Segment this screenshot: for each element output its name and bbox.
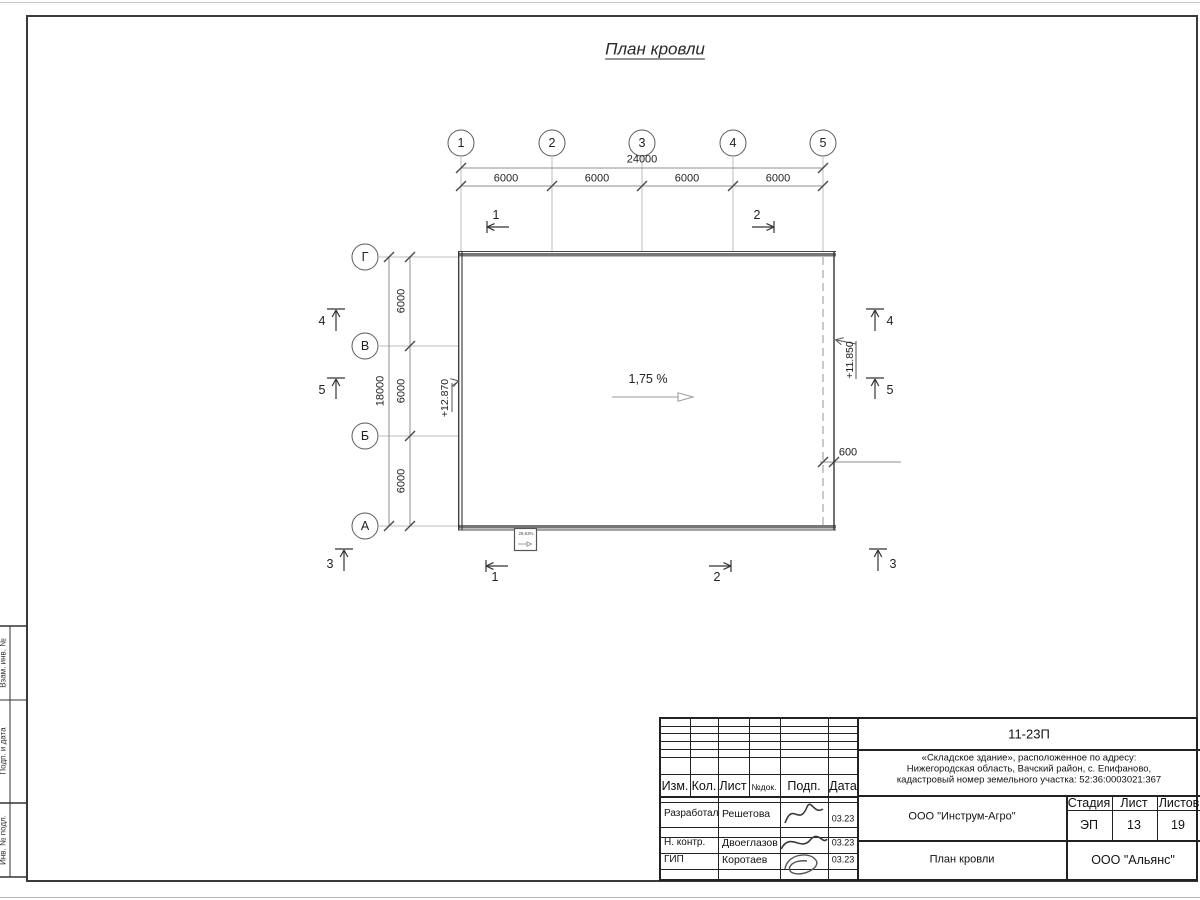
tb-sheet-value: 13: [1127, 819, 1141, 832]
dim-left-total: 18000: [376, 376, 387, 407]
tb-header-kol: Кол.: [692, 780, 717, 793]
tb-drawing-title: План кровли: [930, 855, 995, 866]
elevation-right: +11.850: [845, 341, 856, 378]
dim-top-seg-1: 6000: [494, 174, 518, 185]
tb-line: [661, 741, 858, 742]
tb-header-data: Дата: [829, 780, 857, 793]
tb-line: [718, 719, 719, 880]
tb-object-line3: кадастровый номер земельного участка: 52…: [897, 775, 1161, 785]
tb-line: [857, 795, 1200, 797]
axis-bubble-2: 2: [549, 137, 556, 150]
dim-top-seg-4: 6000: [766, 174, 790, 185]
tb-line: [661, 802, 858, 803]
slope-annotation: 1,75 %: [629, 373, 668, 386]
axis-bubble-a: А: [361, 520, 369, 533]
axis-bubble-5: 5: [820, 137, 827, 150]
screenshot-root: { "page": { "title": "План кровли" }, "a…: [0, 0, 1200, 900]
tb-date-developer: 03.23: [832, 815, 855, 824]
tb-object-line1: «Складское здание», расположенное по адр…: [922, 753, 1137, 763]
tb-line: [1066, 810, 1200, 811]
tb-header-podp: Подп.: [787, 780, 820, 793]
tb-date-gip: 03.23: [832, 856, 855, 865]
dim-top-seg-3: 6000: [675, 174, 699, 185]
dim-left-seg-2: 6000: [397, 379, 408, 403]
tb-header-list: Лист: [719, 780, 746, 793]
section-digit-3-right: 3: [890, 558, 897, 571]
tb-line: [661, 827, 858, 828]
section-digit-2-bottom: 2: [714, 571, 721, 584]
signature-gip: [777, 831, 831, 879]
section-digit-1-bottom: 1: [492, 571, 499, 584]
section-digit-4-right: 4: [887, 315, 894, 328]
signature-developer: [781, 799, 827, 829]
tb-role-developer: Разработал: [664, 809, 718, 819]
tb-role-ncontrol: Н. контр.: [664, 838, 705, 848]
axis-bubble-1: 1: [458, 137, 465, 150]
tb-sheet-label: Лист: [1120, 797, 1147, 810]
section-digit-1-top: 1: [493, 209, 500, 222]
axis-bubble-4: 4: [730, 137, 737, 150]
tb-line: [1112, 795, 1113, 840]
page-title: План кровли: [605, 41, 705, 58]
tb-line: [661, 733, 858, 734]
tb-sheets-value: 19: [1171, 819, 1185, 832]
section-digit-5-right: 5: [887, 384, 894, 397]
tb-line: [661, 757, 858, 758]
margin-stamp-label-3: Инв. № подл.: [0, 815, 8, 865]
dim-left-seg-1: 6000: [397, 289, 408, 313]
tb-name-developer: Решетова: [722, 809, 770, 820]
tb-line: [661, 796, 858, 798]
tb-name-gip: Коротаев: [722, 855, 767, 866]
tb-date-ncontrol: 03.23: [832, 839, 855, 848]
tb-doc-number: 11-23П: [1008, 728, 1050, 741]
axis-bubble-g: Г: [362, 251, 369, 264]
dim-top-seg-2: 6000: [585, 174, 609, 185]
axis-bubble-b: Б: [361, 430, 369, 443]
section-digit-5-left: 5: [319, 384, 326, 397]
margin-stamp-label-1: Взам. инв. №: [0, 638, 8, 688]
tb-org: ООО "Инструм-Агро": [908, 812, 1015, 823]
tb-stage-value: ЭП: [1080, 819, 1098, 832]
dim-top-total: 24000: [627, 155, 658, 166]
tb-role-gip: ГИП: [664, 855, 684, 865]
tb-object-line2: Нижегородская область, Вачский район, с.…: [907, 764, 1151, 774]
margin-stamp-label-2: Подп. и дата: [0, 727, 8, 774]
tb-line: [661, 749, 858, 750]
tb-line: [857, 749, 1200, 751]
dim-overhang: 600: [839, 448, 857, 459]
title-block: Изм. Кол. Лист №док. Подп. Дата Разработ…: [659, 717, 1198, 881]
section-digit-4-left: 4: [319, 315, 326, 328]
tb-firm: ООО "Альянс": [1091, 854, 1175, 867]
tb-sheets-label: Листов: [1159, 797, 1200, 810]
tb-name-ncontrol: Двоеглазов: [722, 838, 778, 849]
tb-line: [857, 719, 859, 879]
dim-left-seg-3: 6000: [397, 469, 408, 493]
tb-line: [661, 726, 858, 727]
axis-bubble-v: В: [361, 340, 369, 353]
tb-header-izm: Изм.: [662, 780, 689, 793]
elevation-left: +12.870: [440, 379, 451, 417]
tb-line: [857, 840, 1200, 842]
tb-line: [661, 774, 858, 775]
axis-bubble-3: 3: [639, 137, 646, 150]
section-digit-2-top: 2: [754, 209, 761, 222]
drain-label: 29,63%: [518, 532, 533, 536]
tb-header-ndoc: №док.: [752, 783, 777, 792]
section-digit-3-left: 3: [327, 558, 334, 571]
tb-stage-label: Стадия: [1068, 797, 1111, 810]
